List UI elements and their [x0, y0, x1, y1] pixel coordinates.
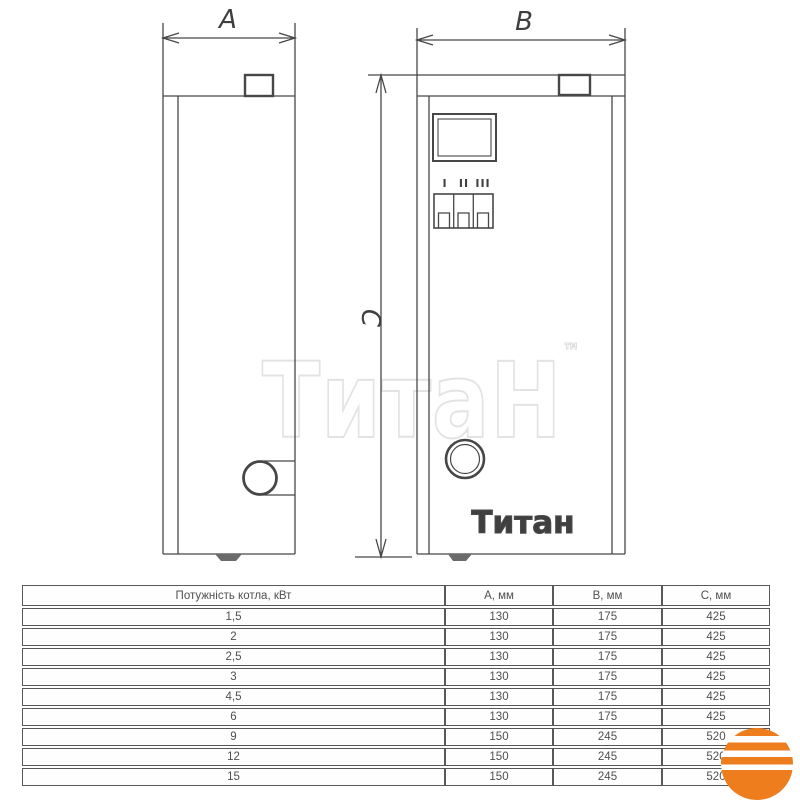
table-cell: 130 — [445, 648, 553, 666]
col-header-power: Потужність котла, кВт — [22, 585, 445, 606]
table-cell: 175 — [553, 628, 662, 646]
table-cell: 150 — [445, 728, 553, 746]
table-cell: 425 — [662, 628, 770, 646]
table-row: 12150245520 — [22, 748, 770, 766]
front-foot — [448, 554, 472, 561]
table-cell: 425 — [662, 688, 770, 706]
switch-label-1: I — [442, 177, 447, 190]
table-cell: 175 — [553, 648, 662, 666]
panel-titan-logo: Титан — [471, 505, 574, 541]
table-cell: 425 — [662, 668, 770, 686]
table-cell: 245 — [553, 748, 662, 766]
boiler-technical-drawing: A B C I II III Титан — [0, 0, 800, 578]
front-top-terminal — [559, 75, 590, 95]
table-cell: 130 — [445, 628, 553, 646]
table-cell: 130 — [445, 688, 553, 706]
side-view — [163, 23, 295, 561]
switch-rocker-1 — [439, 213, 450, 228]
side-top-terminal — [245, 75, 273, 96]
table-cell: 425 — [662, 648, 770, 666]
table-cell: 175 — [553, 688, 662, 706]
table-row: 6130175425 — [22, 708, 770, 726]
power-switches — [434, 194, 493, 228]
table-row: 3130175425 — [22, 668, 770, 686]
table-header-row: Потужність котла, кВт А, мм В, мм С, мм — [22, 585, 770, 606]
striped-sun-logo-icon — [721, 728, 793, 800]
side-pipe-connection — [244, 461, 296, 495]
col-header-c: С, мм — [662, 585, 770, 606]
table-row: 2130175425 — [22, 628, 770, 646]
dim-a-label: A — [217, 5, 237, 35]
col-header-b: В, мм — [553, 585, 662, 606]
table-cell: 4,5 — [22, 688, 445, 706]
table-cell: 2 — [22, 628, 445, 646]
display-window — [433, 114, 496, 161]
table-row: 9150245520 — [22, 728, 770, 746]
table-cell: 245 — [553, 768, 662, 786]
table-cell: 150 — [445, 748, 553, 766]
table-cell: 2,5 — [22, 648, 445, 666]
table-row: 1,5130175425 — [22, 608, 770, 626]
table-row: 2,5130175425 — [22, 648, 770, 666]
switch-rocker-3 — [478, 213, 489, 228]
table-cell: 12 — [22, 748, 445, 766]
front-view — [368, 28, 625, 561]
spec-table: Потужність котла, кВт А, мм В, мм С, мм … — [22, 583, 770, 788]
side-foot — [215, 554, 242, 561]
boiler-spec-page: ТитаН™ — [0, 0, 800, 800]
table-cell: 15 — [22, 768, 445, 786]
spec-table-body: 1,513017542521301754252,5130175425313017… — [22, 608, 770, 786]
table-cell: 425 — [662, 608, 770, 626]
table-cell: 150 — [445, 768, 553, 786]
table-cell: 175 — [553, 668, 662, 686]
table-cell: 130 — [445, 668, 553, 686]
col-header-a: А, мм — [445, 585, 553, 606]
table-cell: 1,5 — [22, 608, 445, 626]
dim-b-label: B — [515, 7, 533, 37]
table-cell: 130 — [445, 708, 553, 726]
table-cell: 175 — [553, 608, 662, 626]
table-row: 15150245520 — [22, 768, 770, 786]
table-cell: 6 — [22, 708, 445, 726]
table-cell: 245 — [553, 728, 662, 746]
table-cell: 425 — [662, 708, 770, 726]
control-knob — [446, 440, 484, 478]
switch-label-3: III — [475, 177, 490, 190]
table-cell: 175 — [553, 708, 662, 726]
table-cell: 9 — [22, 728, 445, 746]
table-cell: 130 — [445, 608, 553, 626]
table-cell: 3 — [22, 668, 445, 686]
dim-c-label: C — [355, 309, 385, 328]
table-row: 4,5130175425 — [22, 688, 770, 706]
switch-rocker-2 — [458, 213, 469, 228]
switch-label-2: II — [459, 177, 469, 190]
